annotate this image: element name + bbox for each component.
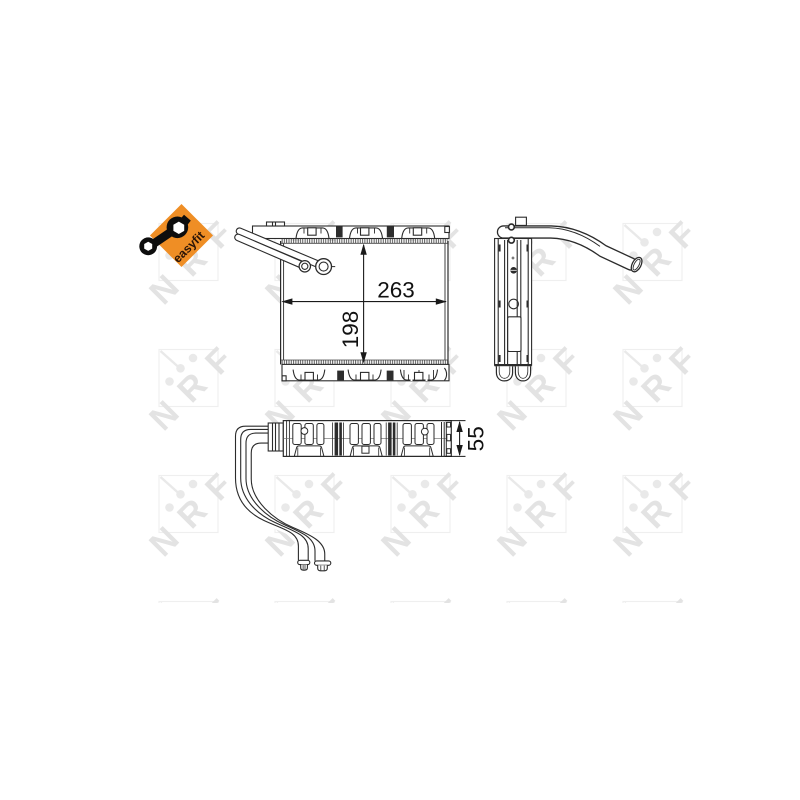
svg-text:198: 198 <box>338 311 363 349</box>
svg-text:263: 263 <box>377 277 415 302</box>
svg-text:55: 55 <box>464 426 489 451</box>
